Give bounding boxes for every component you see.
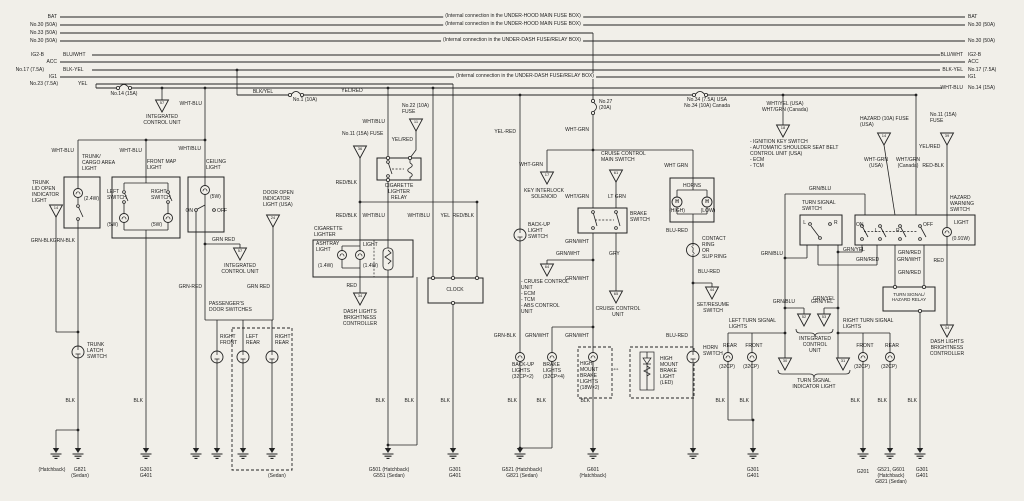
yelred-label-2: YEL/RED bbox=[392, 137, 413, 143]
horns-label: HORNS bbox=[683, 183, 701, 189]
grnblk-label-1: GRN-BLK bbox=[31, 238, 53, 244]
blk-label-5: BLK bbox=[441, 398, 450, 404]
grnred-label-h: GRN RED bbox=[212, 237, 235, 243]
ground-g601-label: G601 (Hatchback) bbox=[580, 467, 607, 479]
junction-dots bbox=[77, 69, 918, 450]
right-switch-label: RIGHT SWITCH bbox=[151, 189, 171, 201]
blk-label-4: BLK bbox=[405, 398, 414, 404]
ground-g521-label: G521 (Hatchback) G821 (Sedan) bbox=[502, 467, 543, 479]
dash-brightness-label-2: DASH LIGHTS BRIGHTNESS CONTROLLER bbox=[930, 339, 964, 357]
ground-g301-label-4: G301 G401 bbox=[916, 467, 928, 479]
triangle-num-34a: 34 bbox=[358, 294, 362, 299]
grnwht-label-1: GRN/WHT bbox=[565, 239, 589, 245]
left-front-bulb-label: FRONT bbox=[745, 343, 762, 349]
triangle-num-14a: 14 bbox=[54, 206, 58, 211]
ashtray-wattage: (1.4W) bbox=[318, 263, 333, 269]
light-label: LIGHT bbox=[363, 242, 378, 248]
fuse-no14-label: No.14 (15A) bbox=[111, 91, 138, 97]
map-bulb-wattage-1: (5W) bbox=[107, 222, 118, 228]
cruise-main-switch-label: CRUISE CONTROL MAIN SWITCH bbox=[601, 151, 646, 163]
blk-label-13: BLK bbox=[908, 398, 917, 404]
hazard-fuse-label: HAZARD (10A) FUSE (USA) bbox=[860, 116, 909, 128]
triangle-num-64: 64 bbox=[545, 265, 549, 270]
redblk-label-2: RED/BLK bbox=[336, 213, 357, 219]
bus-no23-color: YEL bbox=[78, 81, 87, 87]
ground-g301-label-1: G301 G401 bbox=[140, 467, 152, 479]
triangle-num-18: 18 bbox=[781, 126, 785, 131]
fuse-no22-label: No.22 (10A) FUSE bbox=[402, 103, 429, 115]
grnred-label-4: GRN/RED bbox=[898, 250, 921, 256]
hazard-r-label: R bbox=[896, 228, 900, 234]
bus-no23-label: No.23 (7.5A) bbox=[30, 81, 58, 87]
bus-ig2b-label: IG2-B bbox=[31, 52, 44, 58]
triangle-num-53: 53 bbox=[822, 315, 826, 320]
grnred-label-5: GRN/RED bbox=[898, 270, 921, 276]
bus-no14-label-r: No.14 (15A) bbox=[968, 85, 995, 91]
icu-label-1: INTEGRATED CONTROL UNIT bbox=[143, 114, 180, 126]
bus-acc-label-r: ACC bbox=[968, 59, 979, 65]
bus-ig1-label: IG1 bbox=[49, 74, 57, 80]
bus-no30b-label-r: No.30 (50A) bbox=[968, 38, 995, 44]
bus-ig2b-label-r: IG2-B bbox=[968, 52, 981, 58]
icu-label-2: INTEGRATED CONTROL UNIT bbox=[221, 263, 258, 275]
triangle-num-52: 52 bbox=[802, 315, 806, 320]
tsi-label: TURN SIGNAL INDICATOR LIGHT bbox=[792, 378, 835, 390]
ceiling-bulb-wattage: (5W) bbox=[210, 194, 221, 200]
grnblu-label-2: GRN/BLU bbox=[761, 251, 783, 257]
horn-high-h: H bbox=[675, 199, 679, 205]
cp32-label-3: (32CP) bbox=[854, 364, 870, 370]
key-interlock-label: KEY INTERLOCK SOLENOID bbox=[524, 188, 564, 200]
grnwht-label-4: GRN/WHT bbox=[525, 333, 549, 339]
underhood-note-1: (Internal connection in the UNDER-HOOD M… bbox=[443, 13, 583, 19]
yel-label: YEL bbox=[441, 213, 450, 219]
contact-terminals bbox=[77, 156, 926, 312]
blk-label-10: BLK bbox=[740, 398, 749, 404]
bus-ig1-label-r: IG1 bbox=[968, 74, 976, 80]
tss-r-label: R bbox=[834, 220, 838, 226]
ts-hazard-relay-label: TURN SIGNAL/ HAZARD RELAY bbox=[892, 292, 926, 303]
right-front-bulb-label: FRONT bbox=[856, 343, 873, 349]
right-front-label: RIGHT FRONT bbox=[220, 334, 237, 346]
ceiling-on-label: ON bbox=[186, 208, 194, 214]
bus-ig2b-color-r: BLU/WHT bbox=[941, 52, 964, 58]
whtblu-label-2: WHT-BLU bbox=[52, 148, 75, 154]
left-switch-label: LEFT SWITCH bbox=[107, 189, 127, 201]
front-map-light-label: FRONT MAP LIGHT bbox=[147, 159, 176, 171]
bus-no17-label-r: No.17 (7.5A) bbox=[968, 67, 996, 73]
fuse-no11l-label: No.11 (15A) FUSE bbox=[342, 131, 383, 137]
hazard-switch-label: HAZARD WARNING SWITCH bbox=[950, 195, 974, 213]
whtyel-label: WHT/YEL (USA) WHT/GRN (Canada) bbox=[762, 101, 808, 113]
ground-symbols bbox=[51, 448, 926, 458]
bus-no14-color-r: WHT-BLU bbox=[941, 85, 964, 91]
bus-no17-label: No.17 (7.5A) bbox=[16, 67, 44, 73]
horn-switch-label: HORN SWITCH bbox=[703, 345, 723, 357]
ground-hatchback-label: (Hatchback) bbox=[39, 467, 66, 473]
bus-no30a-label-r: No.30 (50A) bbox=[968, 22, 995, 28]
gry-label: GRY bbox=[609, 251, 620, 257]
cig-lighter-label: CIGARETTE LIGHTER bbox=[314, 226, 343, 238]
hazard-l-label: L bbox=[875, 228, 878, 234]
ltgrn-label: LT GRN bbox=[608, 194, 626, 200]
fuse-no1-label: No.1 (10A) bbox=[293, 97, 317, 103]
right-rear-bulb-label: REAR bbox=[885, 343, 899, 349]
triangle-num-34b: 34 bbox=[945, 326, 949, 331]
set-resume-label: SET/RESUME SWITCH bbox=[697, 302, 730, 314]
hazard-on-label: ON bbox=[856, 222, 864, 228]
fuse-no27-label: No.27 (20A) bbox=[599, 99, 612, 111]
fuse-no11r-label: No.11 (15A) FUSE bbox=[930, 112, 957, 124]
triangle-num-31: 31 bbox=[841, 359, 845, 364]
triangle-num-57a: 57 bbox=[160, 101, 164, 106]
switch-symbols bbox=[72, 229, 700, 363]
whtgrn-label-1: WHT-GRN bbox=[565, 127, 589, 133]
redblk-label-3: RED/BLK bbox=[453, 213, 474, 219]
whtblu-label-3: WHT-BLU bbox=[120, 148, 143, 154]
grnyel-label-1: GRN/YEL bbox=[843, 247, 865, 253]
blk-label-7: BLK bbox=[537, 398, 546, 404]
grnwht-label-2: GRN/WHT bbox=[556, 251, 580, 257]
grnred-label-3: GRN/RED bbox=[856, 257, 879, 263]
backup-lights-label: BACK-UP LIGHTS (32CP×2) bbox=[512, 362, 534, 380]
turn-signal-switch-label: TURN SIGNAL SWITCH bbox=[802, 200, 836, 212]
ashtray-light-label: ASHTRAY LIGHT bbox=[316, 241, 339, 253]
fuse-no34-label: No.34 (7.5A) USA No.34 (10A) Canada bbox=[684, 97, 730, 109]
triangle-num-57b: 57 bbox=[238, 249, 242, 254]
grnwht-label-3: GRN/WHT bbox=[565, 276, 589, 282]
whtgrn-label-3: WHT/GRN bbox=[565, 194, 589, 200]
red-label-1: RED bbox=[346, 283, 357, 289]
wiring-diagram-page: BAT No.30 (50A) No.33 (50A) No.30 (50A) … bbox=[0, 0, 1024, 501]
brake-lights-label: BRAKE LIGHTS (32CP×4) bbox=[543, 362, 565, 380]
underdash-note-1: (Internal connection in the UNDER-DASH F… bbox=[441, 37, 583, 43]
hazard-light-wattage: (0.91W) bbox=[952, 236, 970, 242]
ground-g501-label: G501 (Hatchback) G551 (Sedan) bbox=[369, 467, 410, 479]
variant-dashed-boxes bbox=[232, 328, 694, 470]
redblk-label-r: RED-BLK bbox=[922, 163, 944, 169]
bus-no33-label: No.33 (50A) bbox=[30, 30, 57, 36]
grnred-label-2: GRN RED bbox=[247, 284, 270, 290]
ceiling-light-label: CEILING LIGHT bbox=[206, 159, 226, 171]
blk-label-2: BLK bbox=[134, 398, 143, 404]
clock-label: CLOCK bbox=[446, 287, 463, 293]
whtblu-label-4: WHT/BLU bbox=[179, 146, 202, 152]
sedan-variant-label: (Sedan) bbox=[268, 473, 286, 479]
bus-no30b-label: No.30 (50A) bbox=[30, 38, 57, 44]
triangle-num-61: 61 bbox=[614, 171, 618, 176]
grnwht-label-5: GRN/WHT bbox=[565, 333, 589, 339]
trunk-latch-switch-label: TRUNK LATCH SWITCH bbox=[87, 342, 107, 360]
blk-label-9: BLK bbox=[716, 398, 725, 404]
blured-label-1: BLU-RED bbox=[666, 228, 688, 234]
equivalent-arrows-icon: ⇔ bbox=[612, 364, 620, 374]
grnblu-label-3: GRN/BLU bbox=[773, 299, 795, 305]
ground-g821-label: G821 (Sedan) bbox=[71, 467, 89, 479]
light-wattage: (1.4W) bbox=[363, 263, 378, 269]
triangle-num-14b: 14 bbox=[882, 134, 886, 139]
yelred-label-3: YEL/RED bbox=[919, 144, 940, 150]
triangle-num-65: 65 bbox=[614, 292, 618, 297]
right-rear-label: RIGHT REAR bbox=[275, 334, 291, 346]
bus-acc-label: ACC bbox=[46, 59, 57, 65]
triangle-num-36: 36 bbox=[358, 147, 362, 152]
underhood-note-2: (Internal connection in the UNDER-HOOD M… bbox=[443, 21, 583, 27]
left-rear-bulb-label: REAR bbox=[723, 343, 737, 349]
yelred-label-4: YEL-RED bbox=[494, 129, 516, 135]
whtgrn-label-2: WHT-GRN bbox=[519, 162, 543, 168]
blk-label-12: BLK bbox=[878, 398, 887, 404]
cruise-unit-label: CRUISE CONTROL UNIT bbox=[596, 306, 641, 318]
underdash-note-2: (Internal connection in the UNDER-DASH F… bbox=[454, 73, 596, 79]
left-rear-label: LEFT REAR bbox=[246, 334, 260, 346]
whtblu-label-7: WHT/BLU bbox=[408, 213, 431, 219]
power-bus-lines bbox=[60, 17, 965, 95]
trunk-lid-indicator-label: TRUNK LID OPEN INDICATOR LIGHT bbox=[32, 180, 59, 204]
passenger-door-switches-label: PASSENGER'S DOOR SWITCHES bbox=[209, 301, 252, 313]
blk-label-6: BLK bbox=[508, 398, 517, 404]
map-bulb-wattage-2: (5W) bbox=[151, 222, 162, 228]
blured-label-3: BLU-RED bbox=[666, 333, 688, 339]
cp32-label-2: (32CP) bbox=[743, 364, 759, 370]
brake-switch-label: BRAKE SWITCH bbox=[630, 211, 650, 223]
bus-bat-label: BAT bbox=[48, 14, 57, 20]
whtgrn-can-label: WHT/GRN (Canada) bbox=[896, 157, 920, 169]
ground-g521b-label: G521, G601 (Hatchback) G821 (Sedan) bbox=[875, 467, 906, 485]
blkyel-label: BLK/YEL bbox=[253, 89, 273, 95]
cp32-label-4: (32CP) bbox=[881, 364, 897, 370]
ground-g301-label-2: G301 G401 bbox=[449, 467, 461, 479]
whtblu-label-1: WHT-BLU bbox=[180, 101, 203, 107]
whtblu-label-5: WHT/BLU bbox=[363, 119, 386, 125]
dash-brightness-label-1: DASH LIGHTS BRIGHTNESS CONTROLLER bbox=[343, 309, 377, 327]
grnblk-label-2: GRN-BLK bbox=[53, 238, 75, 244]
horn-low-h: H bbox=[705, 199, 709, 205]
blk-label-11: BLK bbox=[851, 398, 860, 404]
ground-g301-label-3: G301 G401 bbox=[747, 467, 759, 479]
blured-label-2: BLU-RED bbox=[698, 269, 720, 275]
hazard-light-label: LIGHT bbox=[954, 220, 969, 226]
triangle-num-30: 30 bbox=[783, 359, 787, 364]
red-label-2: RED bbox=[933, 258, 944, 264]
blk-label-8: BLK bbox=[581, 398, 590, 404]
grnblk-label-3: GRN-BLK bbox=[494, 333, 516, 339]
whtgrn-label-4: WHT GRN bbox=[664, 163, 688, 169]
bus-no30a-label: No.30 (50A) bbox=[30, 22, 57, 28]
cp32-label-1: (32CP) bbox=[719, 364, 735, 370]
contact-ring-label: CONTACT RING OR SLIP RING bbox=[702, 236, 727, 260]
blk-label-1: BLK bbox=[66, 398, 75, 404]
cig-relay-label: CIGARETTE LIGHTER RELAY bbox=[385, 183, 414, 201]
high-mount-label: HIGH MOUNT BRAKE LIGHTS (18W×2) bbox=[580, 361, 599, 391]
bus-no17-color-r: BLK-YEL bbox=[942, 67, 963, 73]
triangle-num-17: 17 bbox=[545, 173, 549, 178]
whtblu-label-6: WHT/BLU bbox=[363, 213, 386, 219]
blk-label-3: BLK bbox=[376, 398, 385, 404]
left-turn-lights-label: LEFT TURN SIGNAL LIGHTS bbox=[729, 318, 776, 330]
horn-high-label: (HIGH) bbox=[669, 208, 685, 214]
right-turn-lights-label: RIGHT TURN SIGNAL LIGHTS bbox=[843, 318, 893, 330]
bus-no17-color: BLK-YEL bbox=[63, 67, 84, 73]
door-open-indicator-label: DOOR OPEN INDICATOR LIGHT (USA) bbox=[263, 190, 294, 208]
triangle-num-39: 39 bbox=[945, 134, 949, 139]
bus-bat-label-r: BAT bbox=[968, 14, 977, 20]
ceiling-off-label: OFF bbox=[217, 208, 227, 214]
grnred-label-1: GRN-RED bbox=[179, 284, 202, 290]
trunk-cargo-light-label: TRUNK/ CARGO AREA LIGHT bbox=[82, 154, 115, 172]
trunk-bulb-wattage: (2.4W) bbox=[84, 196, 99, 202]
high-mount-led-label: HIGH MOUNT BRAKE LIGHT (LED) bbox=[660, 356, 678, 386]
triangle-num-24: 24 bbox=[271, 216, 275, 221]
cruise-unit-list: - CRUISE CONTROL UNIT - ECM - TCM - ABS … bbox=[521, 279, 569, 315]
yelred-label-1: YEL/RED bbox=[341, 88, 362, 94]
tss-l-label: L bbox=[803, 220, 806, 226]
backup-light-switch-label: BACK-UP LIGHT SWITCH bbox=[528, 222, 550, 240]
horn-low-label: (LOW) bbox=[701, 208, 716, 214]
grnblu-label-1: GRN/BLU bbox=[809, 186, 831, 192]
bus-ig2b-color: BLU/WHT bbox=[63, 52, 86, 58]
triangle-num-11: 11 bbox=[414, 120, 418, 125]
grnwht-label-6: GRN/WHT bbox=[897, 257, 921, 263]
ignition-list: - IGNITION KEY SWITCH - AUTOMATIC SHOULD… bbox=[750, 139, 838, 169]
redblk-label-1: RED/BLK bbox=[336, 180, 357, 186]
hazard-off-label: OFF bbox=[923, 222, 933, 228]
triangle-num-44: 44 bbox=[710, 288, 714, 293]
ground-g201-label: G201 bbox=[857, 469, 869, 475]
grnyel-label-3: GRN/YEL bbox=[811, 299, 833, 305]
icu-label-3: INTEGRATED CONTROL UNIT bbox=[799, 336, 831, 354]
whtgrn-usa-label: WHT-GRN (USA) bbox=[864, 157, 888, 169]
